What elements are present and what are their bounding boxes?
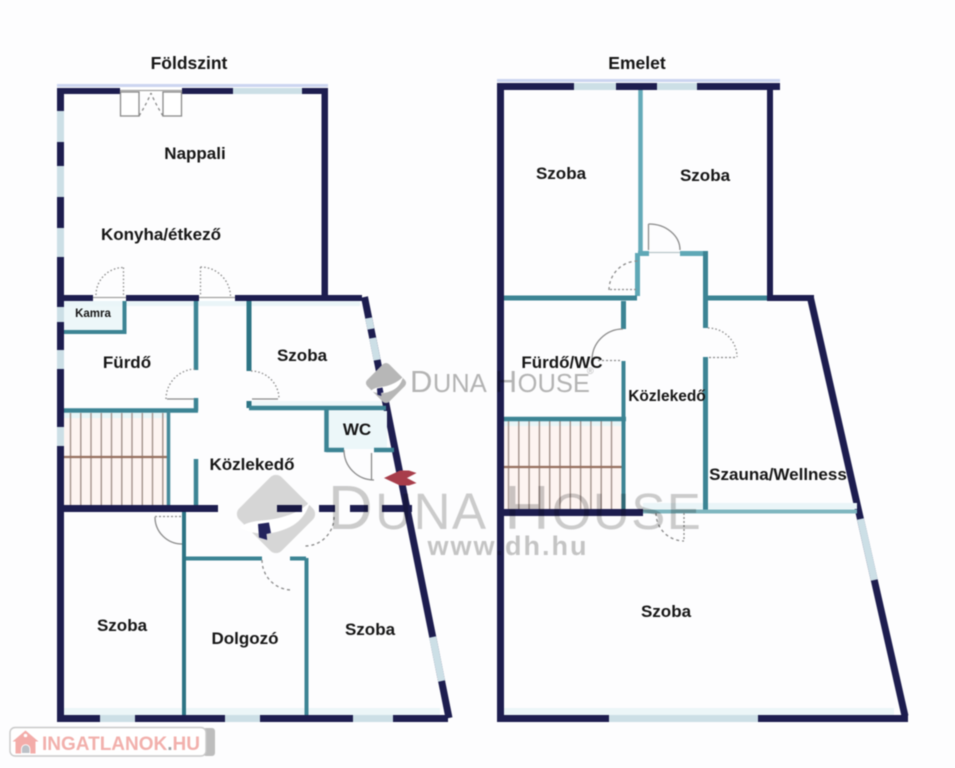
svg-text:Dolgozó: Dolgozó xyxy=(211,629,278,648)
svg-text:Nappali: Nappali xyxy=(164,144,225,163)
svg-text:Szoba: Szoba xyxy=(277,346,328,365)
svg-text:®: ® xyxy=(587,366,594,376)
svg-text:Földszint: Földszint xyxy=(151,53,228,73)
svg-text:Kamra: Kamra xyxy=(75,308,111,320)
svg-text:Szoba: Szoba xyxy=(641,602,692,621)
svg-text:Szoba: Szoba xyxy=(97,616,148,635)
svg-text:www.dh.hu: www.dh.hu xyxy=(427,531,589,561)
svg-text:Szoba: Szoba xyxy=(536,164,587,183)
svg-text:Közlekedő: Közlekedő xyxy=(209,455,294,474)
svg-text:Szoba: Szoba xyxy=(345,620,396,639)
svg-text:Emelet: Emelet xyxy=(608,53,666,73)
svg-text:Közlekedő: Közlekedő xyxy=(628,388,706,405)
svg-text:Szauna/Wellness: Szauna/Wellness xyxy=(709,465,847,484)
svg-text:Konyha/étkező: Konyha/étkező xyxy=(101,225,221,244)
svg-text:WC: WC xyxy=(343,420,371,439)
svg-text:Szoba: Szoba xyxy=(680,166,731,185)
svg-text:DUNAHOUSE: DUNAHOUSE xyxy=(410,364,590,399)
svg-text:INGATLANOK.HU: INGATLANOK.HU xyxy=(42,734,200,755)
svg-text:Fürdő: Fürdő xyxy=(103,353,151,372)
